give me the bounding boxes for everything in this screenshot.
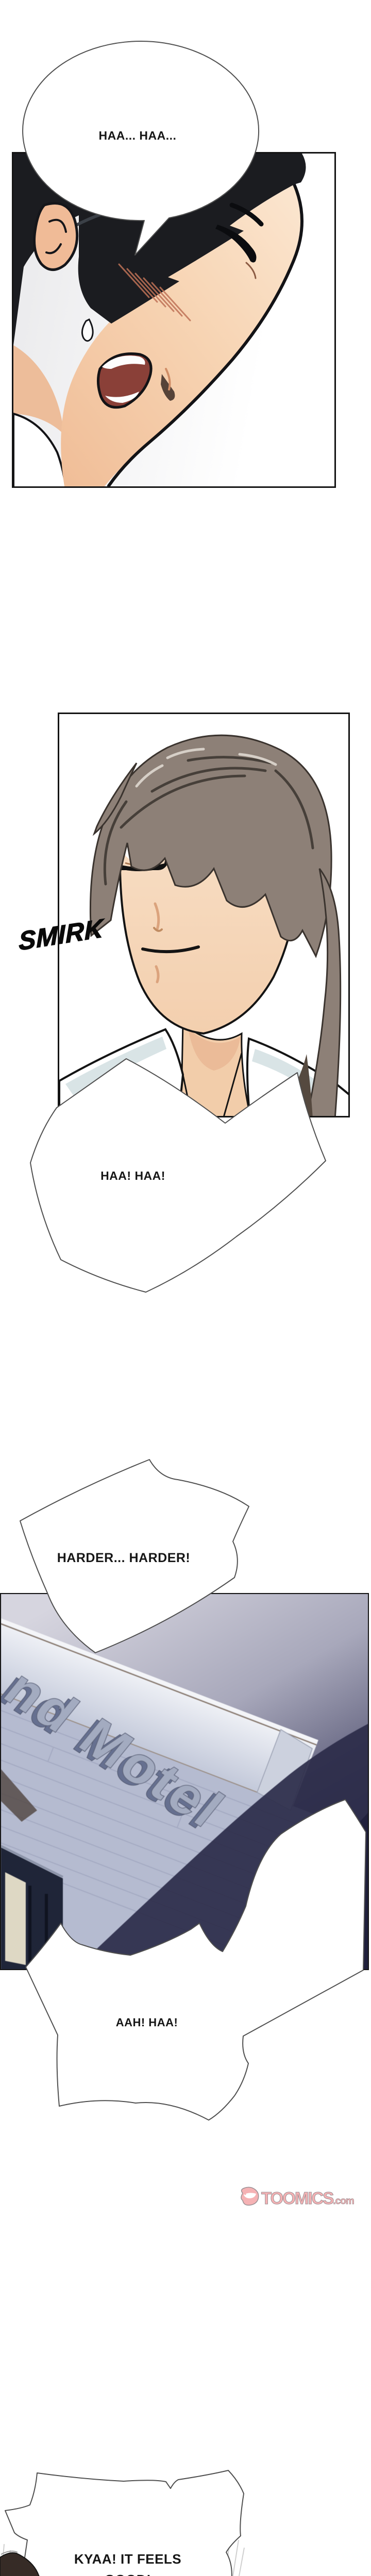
watermark-suffix: .com — [333, 2196, 353, 2207]
speech-text-panting-glasses: HAA! HAA! — [56, 1169, 210, 1183]
speech-bubble-panting-top — [23, 41, 259, 255]
speech-text-kyaa-line1: KYAA! IT FEELS — [38, 2551, 218, 2567]
webtoon-page: nd Motel nd Motel — [0, 0, 371, 2576]
speech-bubble-aah — [26, 1800, 366, 2120]
toomics-logo-icon — [239, 2186, 260, 2207]
speech-text-aah: AAH! HAA! — [70, 2016, 224, 2029]
toomics-watermark: TOOMICS .com — [239, 2186, 354, 2207]
speech-text-panting-top: HAA... HAA... — [60, 129, 215, 143]
speech-text-harder: HARDER... HARDER! — [33, 1551, 214, 1566]
watermark-brand: TOOMICS — [261, 2190, 333, 2207]
speech-text-kyaa-line2: GOOD! — [38, 2572, 218, 2576]
